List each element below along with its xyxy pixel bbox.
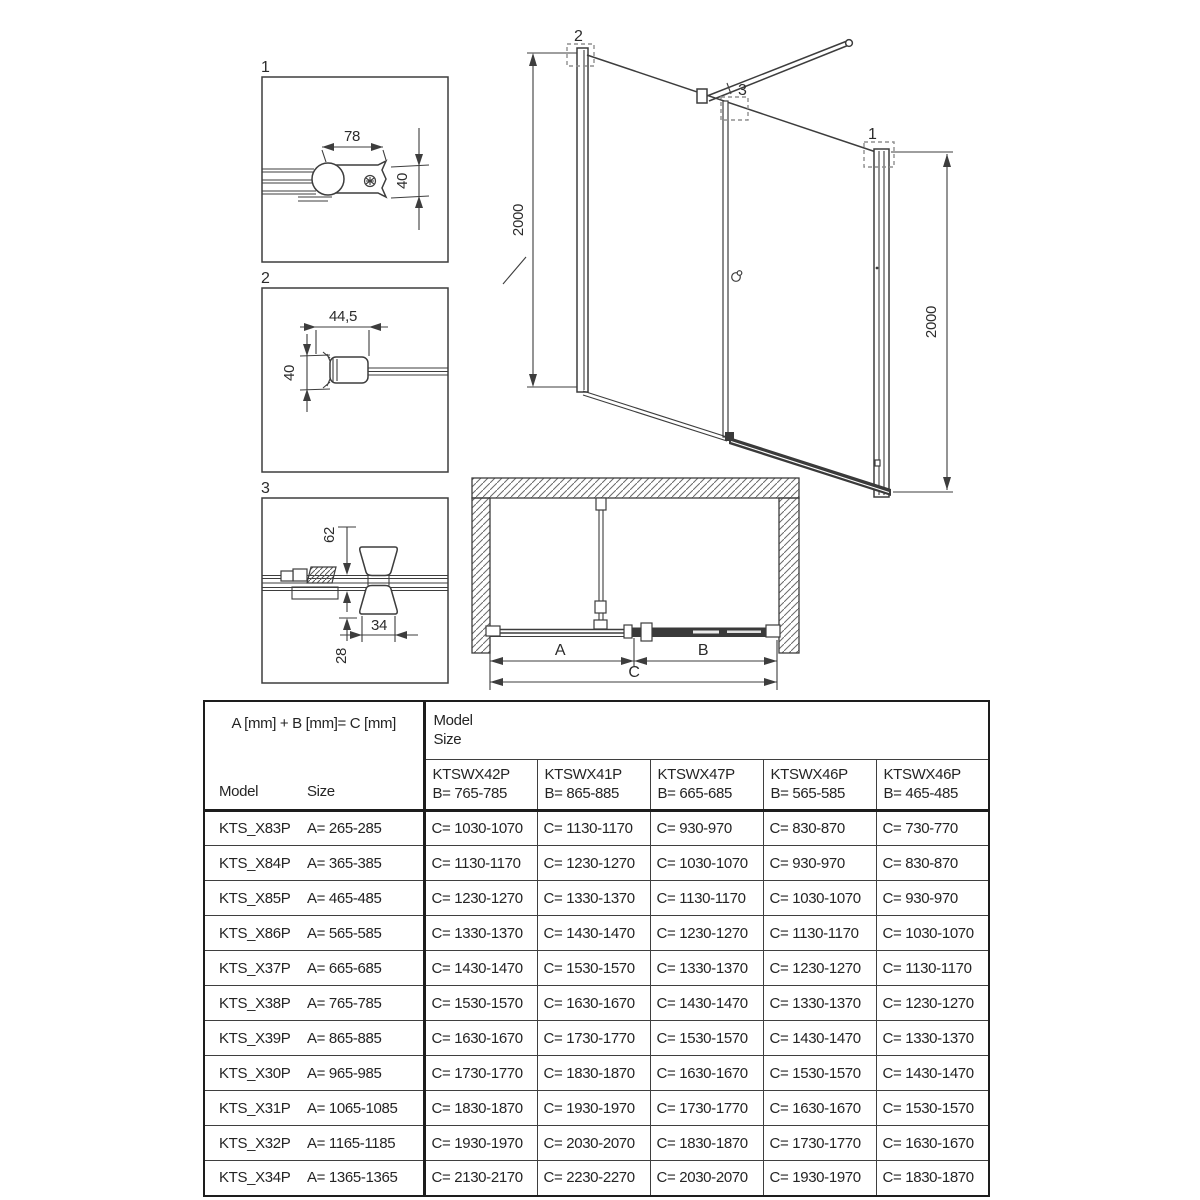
detail-1-label: 1: [261, 59, 270, 76]
walls: [472, 478, 799, 653]
glass-top-edge: [587, 55, 876, 152]
c-range-cell: C= 930-970: [763, 846, 876, 881]
c-range-cell: C= 1330-1370: [876, 1021, 989, 1056]
c-range-cell: C= 1930-1970: [424, 1126, 537, 1161]
callout-1-label: 1: [868, 126, 877, 143]
c-range-cell: C= 1530-1570: [537, 951, 650, 986]
model-column-label: Model: [219, 783, 307, 800]
model-size-cell: KTS_X86PA= 565-585: [204, 916, 424, 951]
detail-1-width-dim: 78: [344, 128, 360, 145]
c-range-cell: C= 1630-1670: [424, 1021, 537, 1056]
column-header: KTSWX47PB= 665-685: [650, 759, 763, 810]
formula-cell: A [mm] + B [mm]= C [mm] Model Size: [204, 701, 424, 811]
c-range-cell: C= 1730-1770: [763, 1126, 876, 1161]
sill-fitting: [725, 432, 734, 441]
c-range-cell: C= 1530-1570: [650, 1021, 763, 1056]
model-size-cell: KTS_X85PA= 465-485: [204, 881, 424, 916]
detail-drawing-1: 1 78: [253, 48, 455, 265]
c-range-cell: C= 1630-1670: [876, 1126, 989, 1161]
model-size-group-header: Model Size: [424, 701, 989, 759]
c-range-cell: C= 1030-1070: [876, 916, 989, 951]
detail-3-top-dim: 62: [321, 527, 338, 543]
detail-2-label: 2: [261, 270, 270, 287]
left-wall-bracket: [486, 626, 500, 636]
c-range-cell: C= 1030-1070: [424, 811, 537, 846]
c-range-cell: C= 1830-1870: [537, 1056, 650, 1091]
left-height-dimension: 2000: [503, 53, 584, 387]
c-range-cell: C= 1430-1470: [763, 1021, 876, 1056]
elevation-right-height: 2000: [923, 306, 940, 338]
model-size-cell: KTS_X38PA= 765-785: [204, 986, 424, 1021]
c-range-cell: C= 1130-1170: [763, 916, 876, 951]
c-range-cell: C= 1930-1970: [537, 1091, 650, 1126]
model-size-cell: KTS_X83PA= 265-285: [204, 811, 424, 846]
table-row: KTS_X84PA= 365-385C= 1130-1170C= 1230-12…: [204, 846, 989, 881]
c-range-cell: C= 1430-1470: [650, 986, 763, 1021]
elevation-left-height: 2000: [510, 204, 527, 236]
c-range-cell: C= 2130-2170: [424, 1161, 537, 1196]
detail-1-height-dim: 40: [394, 173, 411, 189]
dim-b-label: B: [698, 642, 708, 659]
c-range-cell: C= 2230-2270: [537, 1161, 650, 1196]
model-size-cell: KTS_X84PA= 365-385: [204, 846, 424, 881]
c-range-cell: C= 1730-1770: [424, 1056, 537, 1091]
width-dimension: 78: [322, 128, 386, 162]
c-range-cell: C= 1630-1670: [763, 1091, 876, 1126]
group-header-model: Model: [426, 711, 989, 730]
model-size-cell: KTS_X37PA= 665-685: [204, 951, 424, 986]
c-range-cell: C= 1330-1370: [763, 986, 876, 1021]
c-range-cell: C= 930-970: [876, 881, 989, 916]
table-row: KTS_X30PA= 965-985C= 1730-1770C= 1830-18…: [204, 1056, 989, 1091]
model-size-cell: KTS_X31PA= 1065-1085: [204, 1091, 424, 1126]
door-handle-knob: [732, 271, 742, 282]
c-range-cell: C= 1130-1170: [424, 846, 537, 881]
model-size-cell: KTS_X39PA= 865-885: [204, 1021, 424, 1056]
c-range-cell: C= 1030-1070: [650, 846, 763, 881]
c-range-cell: C= 1830-1870: [876, 1161, 989, 1196]
bottom-dimension: 28: [333, 591, 357, 664]
fixed-panel-wall-profile: [577, 48, 588, 392]
table-row: KTS_X32PA= 1165-1185C= 1930-1970C= 2030-…: [204, 1126, 989, 1161]
c-range-cell: C= 1530-1570: [876, 1091, 989, 1126]
c-range-cell: C= 1930-1970: [763, 1161, 876, 1196]
door-plan: [624, 623, 770, 641]
table-row: KTS_X83PA= 265-285C= 1030-1070C= 1130-11…: [204, 811, 989, 846]
column-header: KTSWX46PB= 565-585: [763, 759, 876, 810]
width-dimension: 34: [340, 616, 418, 642]
c-range-cell: C= 1130-1170: [876, 951, 989, 986]
plan-drawing: A B C: [455, 465, 835, 710]
c-range-cell: C= 1130-1170: [537, 811, 650, 846]
c-range-cell: C= 1630-1670: [537, 986, 650, 1021]
bar-bracket: [697, 89, 707, 103]
size-table: A [mm] + B [mm]= C [mm] Model Size Model…: [203, 700, 990, 1197]
detail-drawing-3: 3 62: [253, 478, 455, 695]
height-dimension: 40: [281, 334, 330, 412]
c-range-cell: C= 1230-1270: [650, 916, 763, 951]
table-row: KTS_X31PA= 1065-1085C= 1830-1870C= 1930-…: [204, 1091, 989, 1126]
c-range-cell: C= 1630-1670: [650, 1056, 763, 1091]
model-size-cell: KTS_X32PA= 1165-1185: [204, 1126, 424, 1161]
c-range-cell: C= 1230-1270: [537, 846, 650, 881]
c-range-cell: C= 1030-1070: [763, 881, 876, 916]
bar-end-cap: [846, 40, 853, 47]
c-range-cell: C= 1830-1870: [650, 1126, 763, 1161]
door-handle-plan: [641, 623, 652, 641]
c-range-cell: C= 1330-1370: [537, 881, 650, 916]
c-range-cell: C= 1230-1270: [424, 881, 537, 916]
size-formula: A [mm] + B [mm]= C [mm]: [205, 702, 423, 732]
c-range-cell: C= 1530-1570: [424, 986, 537, 1021]
detail-drawing-2: 2 44,5 40: [253, 263, 455, 480]
support-bar-plan: [594, 498, 607, 629]
table-row: KTS_X38PA= 765-785C= 1530-1570C= 1630-16…: [204, 986, 989, 1021]
c-range-cell: C= 830-870: [876, 846, 989, 881]
column-header: KTSWX42PB= 765-785: [424, 759, 537, 810]
c-range-cell: C= 2030-2070: [650, 1161, 763, 1196]
c-range-cell: C= 1230-1270: [763, 951, 876, 986]
table-row: KTS_X85PA= 465-485C= 1230-1270C= 1330-13…: [204, 881, 989, 916]
c-range-cell: C= 1330-1370: [424, 916, 537, 951]
dim-a-label: A: [555, 642, 566, 659]
wall-profile: [323, 352, 448, 388]
c-range-cell: C= 1130-1170: [650, 881, 763, 916]
model-size-cell: KTS_X34PA= 1365-1365: [204, 1161, 424, 1196]
right-wall-bracket: [766, 625, 780, 637]
c-range-cell: C= 1230-1270: [876, 986, 989, 1021]
shower-door-spec-sheet: 1 78: [0, 0, 1200, 1200]
detail-2-height-dim: 40: [281, 365, 298, 381]
c-range-cell: C= 1430-1470: [537, 916, 650, 951]
table-row: KTS_X37PA= 665-685C= 1430-1470C= 1530-15…: [204, 951, 989, 986]
knob-handle: [360, 547, 398, 614]
door-wall-profile: [874, 149, 889, 497]
c-range-cell: C= 1730-1770: [650, 1091, 763, 1126]
table-row: KTS_X39PA= 865-885C= 1630-1670C= 1730-17…: [204, 1021, 989, 1056]
plan-dimensions: A B C: [490, 638, 777, 690]
detail-3-width-dim: 34: [371, 617, 387, 634]
c-range-cell: C= 1430-1470: [876, 1056, 989, 1091]
table-row: KTS_X34PA= 1365-1365C= 2130-2170C= 2230-…: [204, 1161, 989, 1196]
height-dimension: 40: [391, 128, 429, 230]
callout-2-label: 2: [574, 28, 583, 45]
right-height-dimension: 2000: [891, 152, 953, 492]
c-range-cell: C= 1730-1770: [537, 1021, 650, 1056]
c-range-cell: C= 1330-1370: [650, 951, 763, 986]
c-range-cell: C= 1830-1870: [424, 1091, 537, 1126]
column-header: KTSWX46PB= 465-485: [876, 759, 989, 810]
oblique-edge-line: [503, 257, 526, 284]
c-range-cell: C= 730-770: [876, 811, 989, 846]
c-range-cell: C= 930-970: [650, 811, 763, 846]
c-range-cell: C= 1430-1470: [424, 951, 537, 986]
c-range-cell: C= 1530-1570: [763, 1056, 876, 1091]
support-bar: [697, 40, 852, 103]
model-size-cell: KTS_X30PA= 965-985: [204, 1056, 424, 1091]
size-column-label: Size: [307, 783, 335, 800]
detail-2-width-dim: 44,5: [329, 308, 357, 325]
door-hinge-plan: [624, 625, 632, 638]
pivot-profile: [723, 101, 728, 437]
detail-3-bottom-dim: 28: [333, 648, 350, 664]
wall-bracket: [312, 161, 386, 197]
c-range-cell: C= 830-870: [763, 811, 876, 846]
detail-3-label: 3: [261, 480, 270, 497]
c-range-cell: C= 2030-2070: [537, 1126, 650, 1161]
dim-c-label: C: [628, 664, 639, 681]
table-row: KTS_X86PA= 565-585C= 1330-1370C= 1430-14…: [204, 916, 989, 951]
group-header-size: Size: [426, 730, 989, 749]
column-header: KTSWX41PB= 865-885: [537, 759, 650, 810]
width-dimension: 44,5: [300, 308, 388, 356]
